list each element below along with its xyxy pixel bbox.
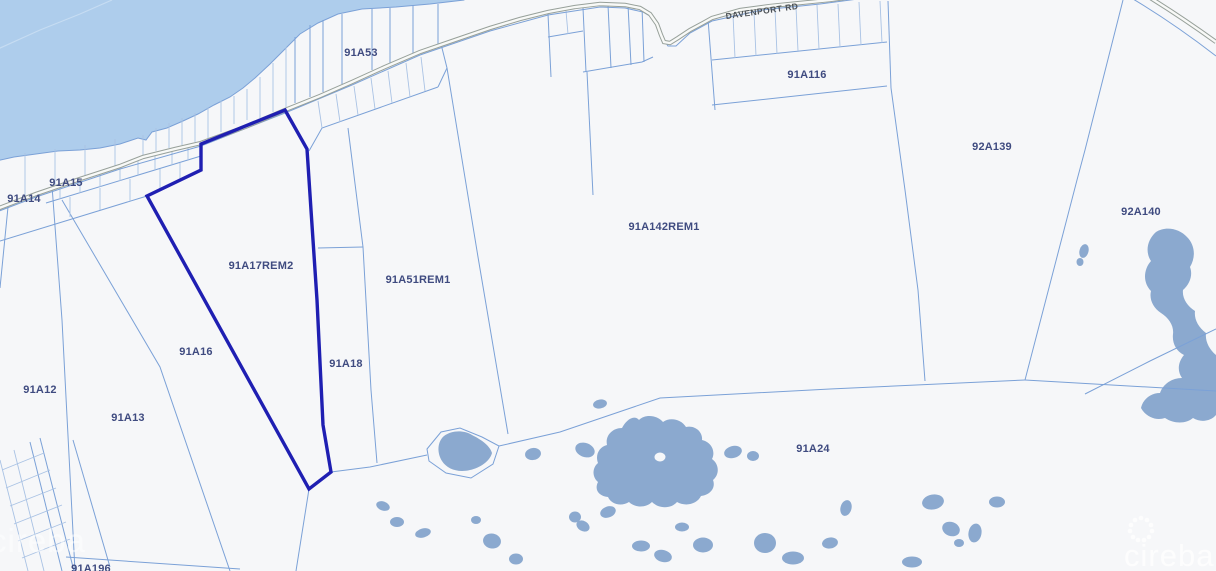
pond-in-parcel: [438, 431, 492, 471]
pond: [1078, 243, 1090, 259]
pond: [940, 519, 962, 538]
pond: [573, 440, 597, 460]
pond-cluster-main: [594, 416, 718, 507]
pond: [524, 447, 542, 462]
highlighted-parcel-layer: [147, 110, 331, 489]
pond: [839, 499, 854, 517]
pond: [592, 398, 607, 409]
pond: [921, 493, 945, 512]
ponds-layer: [375, 229, 1216, 568]
sea-layer: [0, 0, 466, 161]
pond: [482, 532, 502, 550]
pond: [653, 548, 673, 564]
pond: [471, 516, 481, 524]
pond: [509, 554, 523, 565]
sea-polygon: [0, 0, 466, 161]
map-graphics: [0, 0, 1216, 571]
pond: [632, 541, 650, 552]
pond: [954, 539, 964, 547]
pond: [390, 517, 404, 527]
pond: [693, 538, 713, 553]
pond-island: [655, 453, 666, 462]
pond: [1077, 258, 1084, 266]
cireba-logo-ring: [1128, 516, 1155, 543]
pond: [375, 499, 391, 512]
pond: [782, 552, 804, 565]
pond: [967, 523, 983, 544]
pond: [989, 497, 1005, 508]
parcel-map-canvas[interactable]: 91A5391A11692A13992A14091A142REM191A51RE…: [0, 0, 1216, 571]
lake-92a140: [1141, 229, 1216, 423]
corner-road-surface: [1144, 0, 1216, 42]
pond: [599, 504, 618, 520]
pond: [902, 557, 922, 568]
pond: [675, 523, 689, 532]
selected-parcel-outline-91a17rem2[interactable]: [147, 110, 331, 489]
pond: [723, 444, 743, 460]
pond: [754, 533, 776, 553]
pond: [414, 527, 432, 540]
pond: [821, 536, 839, 550]
pond: [747, 451, 759, 461]
